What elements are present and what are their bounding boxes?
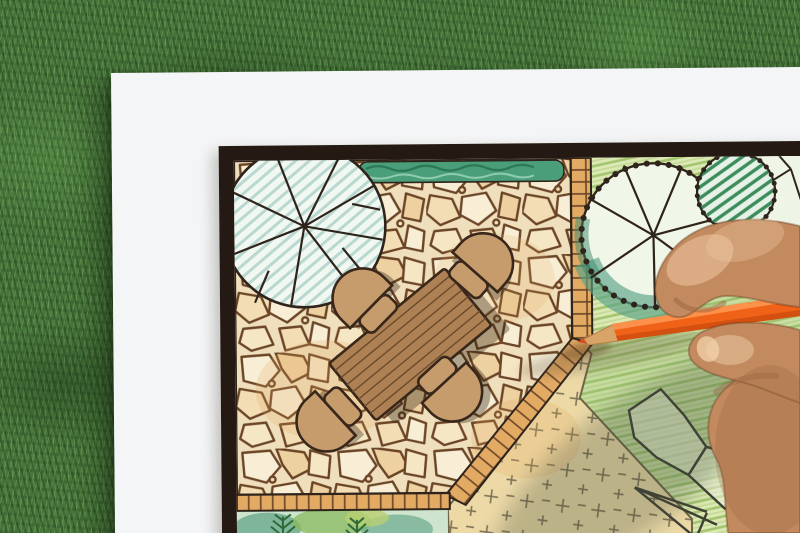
photo-scene: [0, 0, 800, 533]
hedge-strip: [359, 160, 564, 183]
plan-frame-border: [219, 140, 800, 533]
garden-plan-drawing: [234, 156, 800, 533]
plan-sheet: [111, 66, 800, 533]
